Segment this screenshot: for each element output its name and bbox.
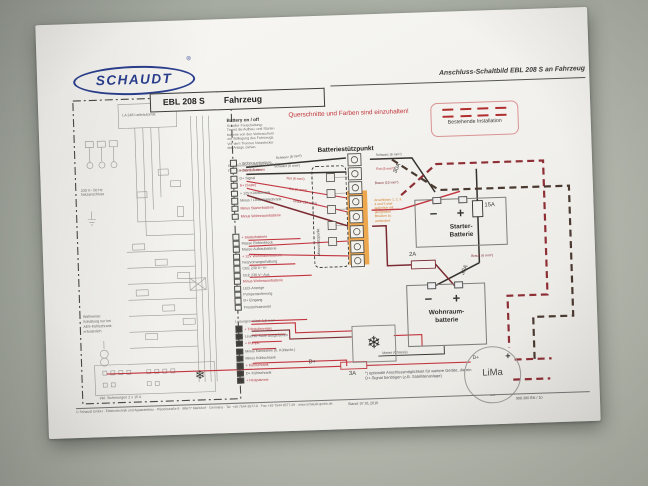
side-note: erforderlich (83, 330, 101, 335)
refrigerator-box: ❄ (351, 324, 396, 362)
terminal-strip-3: + Trittstufenrelais Leuchte Stufe ausgef… (235, 325, 296, 384)
terminal-strip-1: + Wohnraumbatterie + Starterbatterie D+ … (230, 159, 282, 219)
terminal-strip-2: + Starterbatterie Masse Elektroblock Mas… (232, 233, 284, 310)
living-battery-label-1: Wohnraum- (429, 308, 465, 316)
battery-onoff-info: Battery on / off Schalter Freischaltung:… (226, 115, 313, 150)
vehicle-header: Fahrzeug (216, 88, 326, 111)
support-terminals (346, 153, 370, 267)
living-battery-label-2: batterie (435, 316, 458, 324)
wire-label: Braun (6 mm²) (471, 253, 493, 258)
wire-label: Braun (10 mm²) (375, 180, 399, 185)
wire-label: Rot (6 mm²) (376, 166, 394, 171)
red-dashed-sample (442, 107, 506, 118)
fuse-3a: 3A (349, 371, 356, 377)
mains-note: 230 V~ 50 Hz Netzanschluss (81, 187, 127, 197)
schematic-sheet: SCHAUDT ® Anschluss-Schaltbild EBL 208 S… (35, 7, 600, 439)
battery-terminal (432, 197, 441, 204)
minus-sign: − (424, 291, 432, 306)
plus-sign: + (456, 205, 464, 220)
lima-dplus: D+ (472, 355, 479, 361)
ebl-unit-border (73, 96, 241, 404)
battery-terminal (427, 282, 436, 289)
wire-label: Schwarz (6 mm²) (376, 152, 402, 157)
snowflake-icon: ❄ (352, 326, 395, 361)
bridge-note: Anschlüsse 1, 2, 3, 4 und 5 sind äußerli… (374, 197, 403, 223)
legend-caption: Bestehende Installation (432, 117, 518, 126)
snowflake-icon-small: ❄ (195, 368, 206, 382)
lima-plus: + (505, 351, 511, 361)
starter-battery-label-2: Batterie (449, 231, 473, 239)
photo-of-wiring-diagram: SCHAUDT ® Anschluss-Schaltbild EBL 208 S… (0, 0, 648, 486)
starter-battery-label-1: Starter- (450, 223, 473, 231)
footer-docnumber: 908.380 BN / 10 (516, 396, 543, 401)
battery-terminal (454, 281, 463, 288)
unit-header: EBL 208 S (150, 91, 219, 112)
plus-sign: + (452, 290, 460, 305)
wire-label: Masse (Chassis) (382, 350, 407, 355)
fuse-15a: 15A (484, 202, 495, 208)
living-area-battery: − + Wohnraum- batterie (406, 282, 487, 347)
registered-mark: ® (186, 56, 191, 62)
lima-minus: − (490, 390, 496, 401)
battery-terminal (458, 196, 467, 203)
minus-sign: − (430, 206, 438, 221)
fuse-2a: 2A (409, 252, 416, 258)
dplus-line-label: D+ (309, 359, 317, 365)
existing-installation-legend: Bestehende Installation (430, 100, 519, 137)
